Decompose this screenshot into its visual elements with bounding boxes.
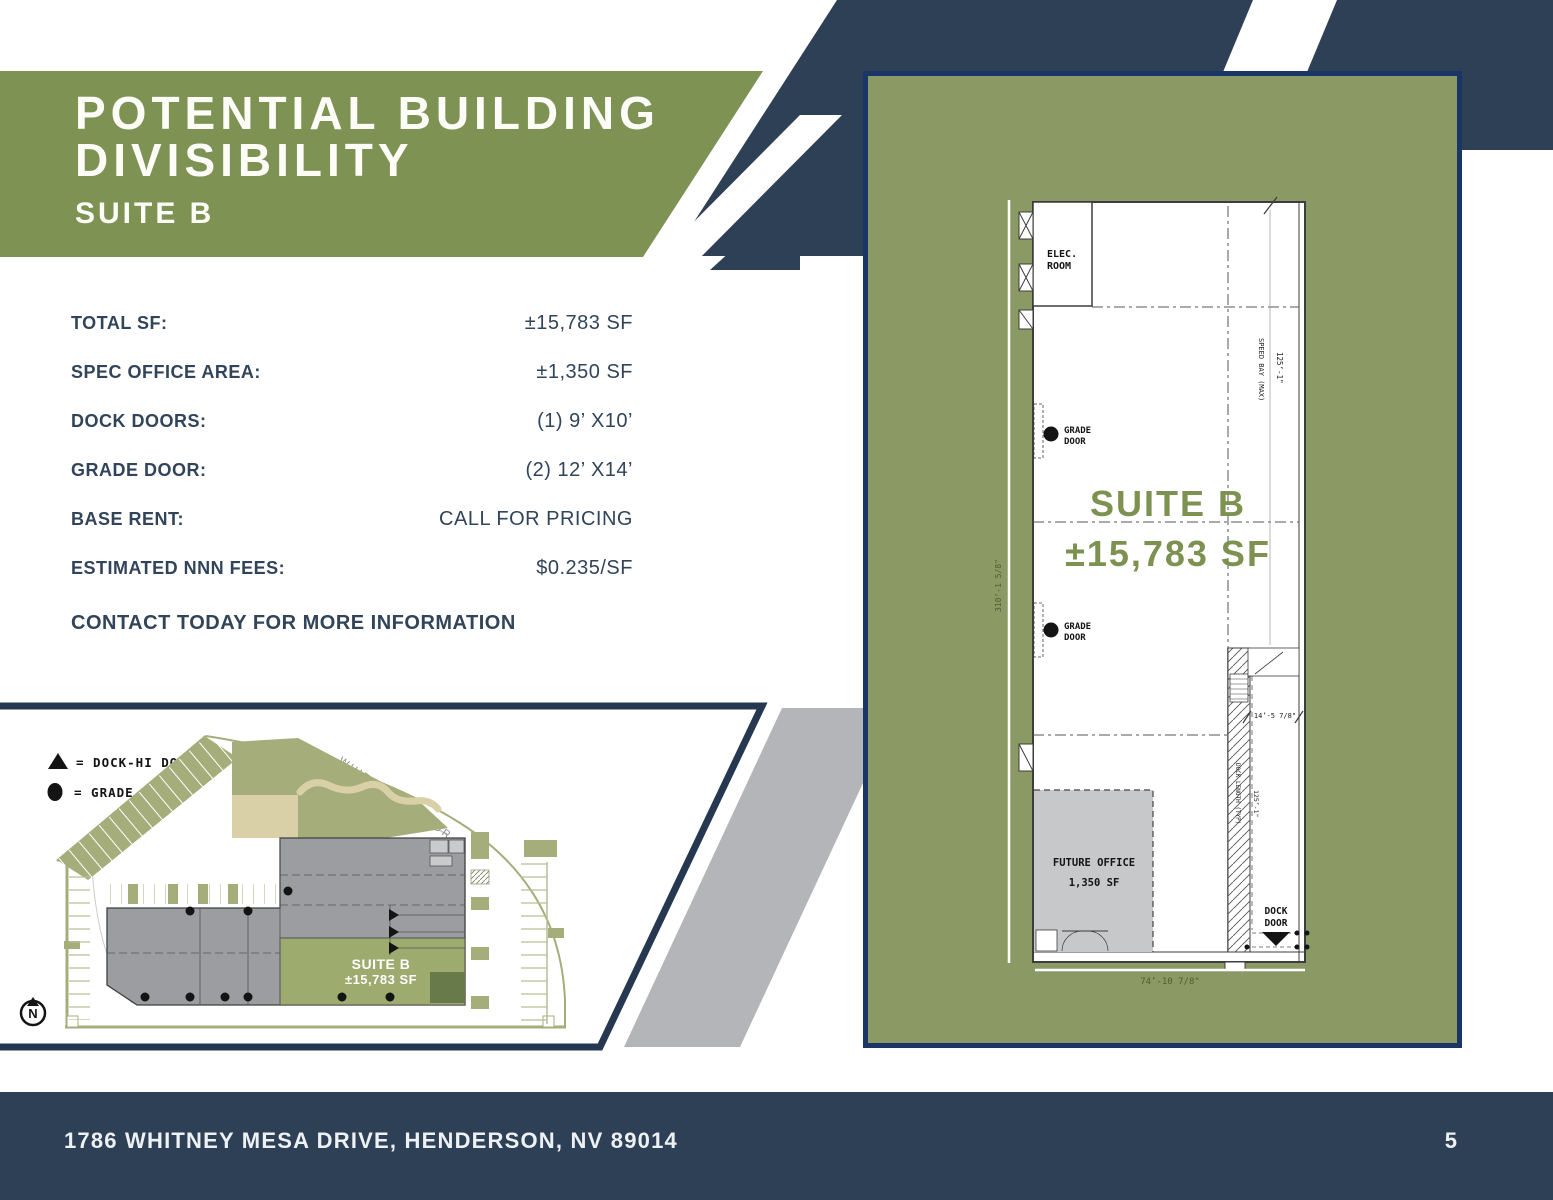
floor-plan: 310’-1 5/8" ELEC. ROOM: [994, 197, 1310, 987]
plan-suite-sf: ±15,783 SF: [1065, 533, 1271, 574]
north-arrow-icon: N: [21, 997, 45, 1025]
stall-island: [168, 884, 178, 904]
left-parking-ticks: [69, 865, 90, 1020]
dock-hi-door-markers: [389, 909, 399, 954]
stall-island: [198, 884, 208, 904]
suite-b-dark-area: [430, 972, 465, 1003]
dock-length-dim: 125’-1": [1252, 790, 1260, 817]
future-office: FUTURE OFFICE 1,350 SF: [1034, 790, 1153, 952]
grade-door-icon: [1044, 623, 1059, 638]
stall-island: [228, 884, 238, 904]
bottom-dim-text: 74’-10 7/8": [1140, 977, 1200, 987]
grade-door-recess: [1034, 404, 1043, 458]
dock-door-label1: DOCK: [1265, 906, 1288, 917]
drawings: = DOCK-HI DOOR = GRADE DOOR WHITNEY MESA…: [0, 0, 1553, 1200]
dock-hi-door-icon: [48, 753, 68, 769]
future-office-label2: 1,350 SF: [1069, 877, 1120, 889]
dock-length-label: DOCK LENGTH (TYP): [1234, 763, 1241, 824]
olive-island: [471, 947, 489, 960]
site-suite-label: SUITE B: [352, 956, 411, 972]
dock-door-label2: DOOR: [1265, 918, 1288, 929]
page-number: 5: [1445, 1128, 1457, 1154]
elec-room: ELEC. ROOM: [1033, 202, 1092, 306]
site-building: SUITE B ±15,783 SF: [107, 838, 465, 1005]
grade-door-icon: [48, 783, 63, 801]
stall-island: [128, 884, 138, 904]
property-address: 1786 WHITNEY MESA DRIVE, HENDERSON, NV 8…: [64, 1128, 678, 1154]
flyer-page: POTENTIAL BUILDING DIVISIBILITY SUITE B …: [0, 0, 1553, 1200]
speed-bay-label: SPEED BAY (MAX): [1257, 338, 1265, 401]
svg-text:GRADE: GRADE: [1064, 426, 1091, 436]
olive-island: [471, 996, 489, 1009]
olive-island: [471, 897, 489, 910]
olive-island: [548, 928, 564, 938]
svg-text:N: N: [28, 1006, 37, 1021]
site-suite-sf: ±15,783 SF: [345, 972, 417, 987]
olive-island: [471, 832, 489, 859]
future-office-label1: FUTURE OFFICE: [1053, 857, 1135, 869]
stair-dim: 14’-5 7/8": [1254, 712, 1296, 720]
svg-text:GRADE: GRADE: [1064, 622, 1091, 632]
olive-island: [524, 840, 557, 857]
elec-room-label1: ELEC.: [1047, 249, 1077, 260]
svg-text:DOOR: DOOR: [1064, 633, 1086, 643]
left-dim-text: 310’-1 5/8": [994, 559, 1003, 612]
stair: [1230, 674, 1248, 702]
site-plan: = DOCK-HI DOOR = GRADE DOOR WHITNEY MESA…: [21, 736, 566, 1028]
elec-room-label2: ROOM: [1047, 261, 1071, 272]
wall-doors: [1019, 212, 1033, 771]
tan-landscape: [232, 795, 298, 838]
footer-bar: 1786 WHITNEY MESA DRIVE, HENDERSON, NV 8…: [0, 1092, 1553, 1200]
right-parking-ticks: [521, 862, 547, 1022]
grade-door-recess: [1034, 603, 1043, 657]
svg-text:DOOR: DOOR: [1064, 437, 1086, 447]
plan-suite-title: SUITE B: [1090, 483, 1246, 524]
hatch-island: [471, 870, 489, 884]
grade-door-icon: [1044, 427, 1059, 442]
landing: [1248, 648, 1299, 676]
bay-depth-dim: 125’-1": [1275, 352, 1284, 384]
